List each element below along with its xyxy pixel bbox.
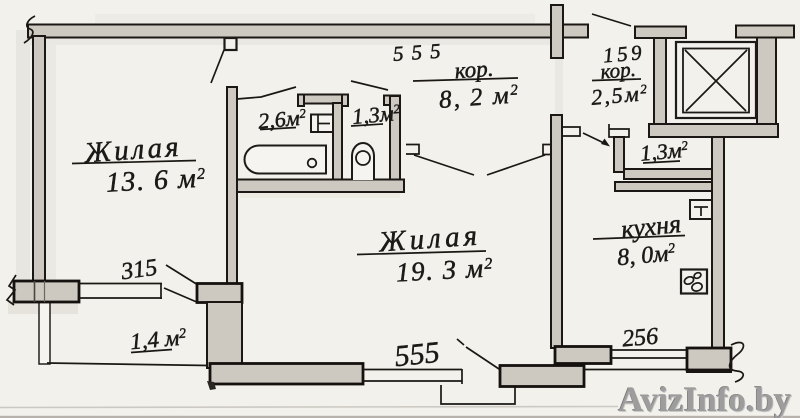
- svg-text:13. 6 м2: 13. 6 м2: [105, 162, 207, 198]
- svg-text:19. 3 м2: 19. 3 м2: [395, 252, 494, 287]
- svg-text:2,5м2: 2,5м2: [590, 80, 650, 110]
- svg-text:555: 555: [392, 38, 449, 66]
- svg-text:AvizInfo.by: AvizInfo.by: [618, 380, 792, 418]
- svg-text:315: 315: [119, 255, 159, 286]
- svg-text:8, 0м2: 8, 0м2: [616, 240, 676, 271]
- svg-text:256: 256: [621, 323, 659, 352]
- svg-text:555: 555: [393, 336, 441, 374]
- svg-text:8, 2 м2: 8, 2 м2: [438, 81, 521, 114]
